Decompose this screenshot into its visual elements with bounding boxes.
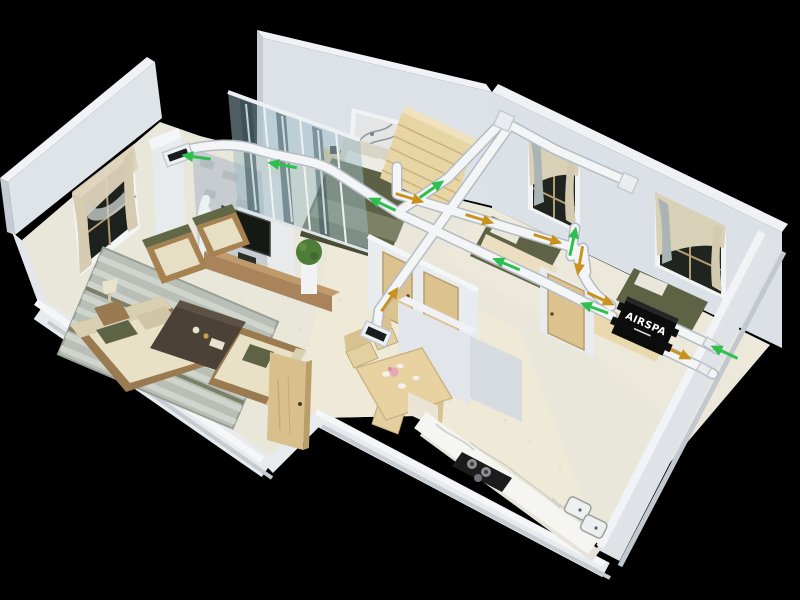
duct-segment bbox=[583, 248, 586, 272]
floorplan-render: AIRSPA bbox=[0, 0, 800, 600]
render-viewport: AIRSPA bbox=[0, 0, 800, 600]
entry-door bbox=[267, 352, 312, 450]
